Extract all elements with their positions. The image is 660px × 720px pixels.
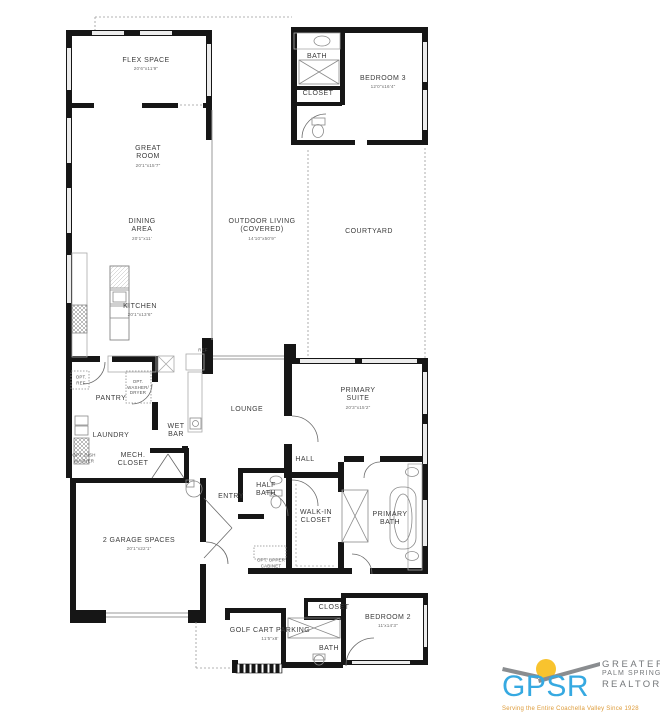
logo-name-line1: GREATER bbox=[602, 659, 660, 670]
logo-name: GREATER PALM SPRINGS REALTORS® bbox=[602, 659, 660, 691]
bath2-fixtures bbox=[288, 618, 340, 665]
wet-bar-counter bbox=[188, 372, 202, 432]
fixtures bbox=[71, 33, 422, 665]
closet-shelving bbox=[296, 484, 334, 566]
refrigerator bbox=[186, 354, 204, 370]
door-swings bbox=[83, 114, 380, 666]
floorplan-page: FLEX SPACE20'6"x11'9"GREAT ROOM20'1"x15'… bbox=[0, 0, 660, 720]
logo-acronym: GPSR bbox=[502, 672, 589, 702]
kitchen-island bbox=[110, 266, 129, 340]
bath3-fixtures bbox=[294, 33, 340, 138]
logo-name-line3: REALTORS® bbox=[602, 679, 660, 690]
floor-plan-drawing bbox=[0, 0, 660, 720]
gpsr-logo: GPSR GREATER PALM SPRINGS REALTORS® Serv… bbox=[500, 656, 658, 716]
half-bath-fixtures bbox=[270, 476, 282, 508]
hatched-wall bbox=[236, 664, 282, 673]
logo-tagline: Serving the Entire Coachella Valley Sinc… bbox=[502, 706, 658, 712]
walls bbox=[66, 27, 428, 673]
logo-name-line2: PALM SPRINGS bbox=[602, 670, 660, 679]
glass-lines bbox=[106, 110, 284, 617]
